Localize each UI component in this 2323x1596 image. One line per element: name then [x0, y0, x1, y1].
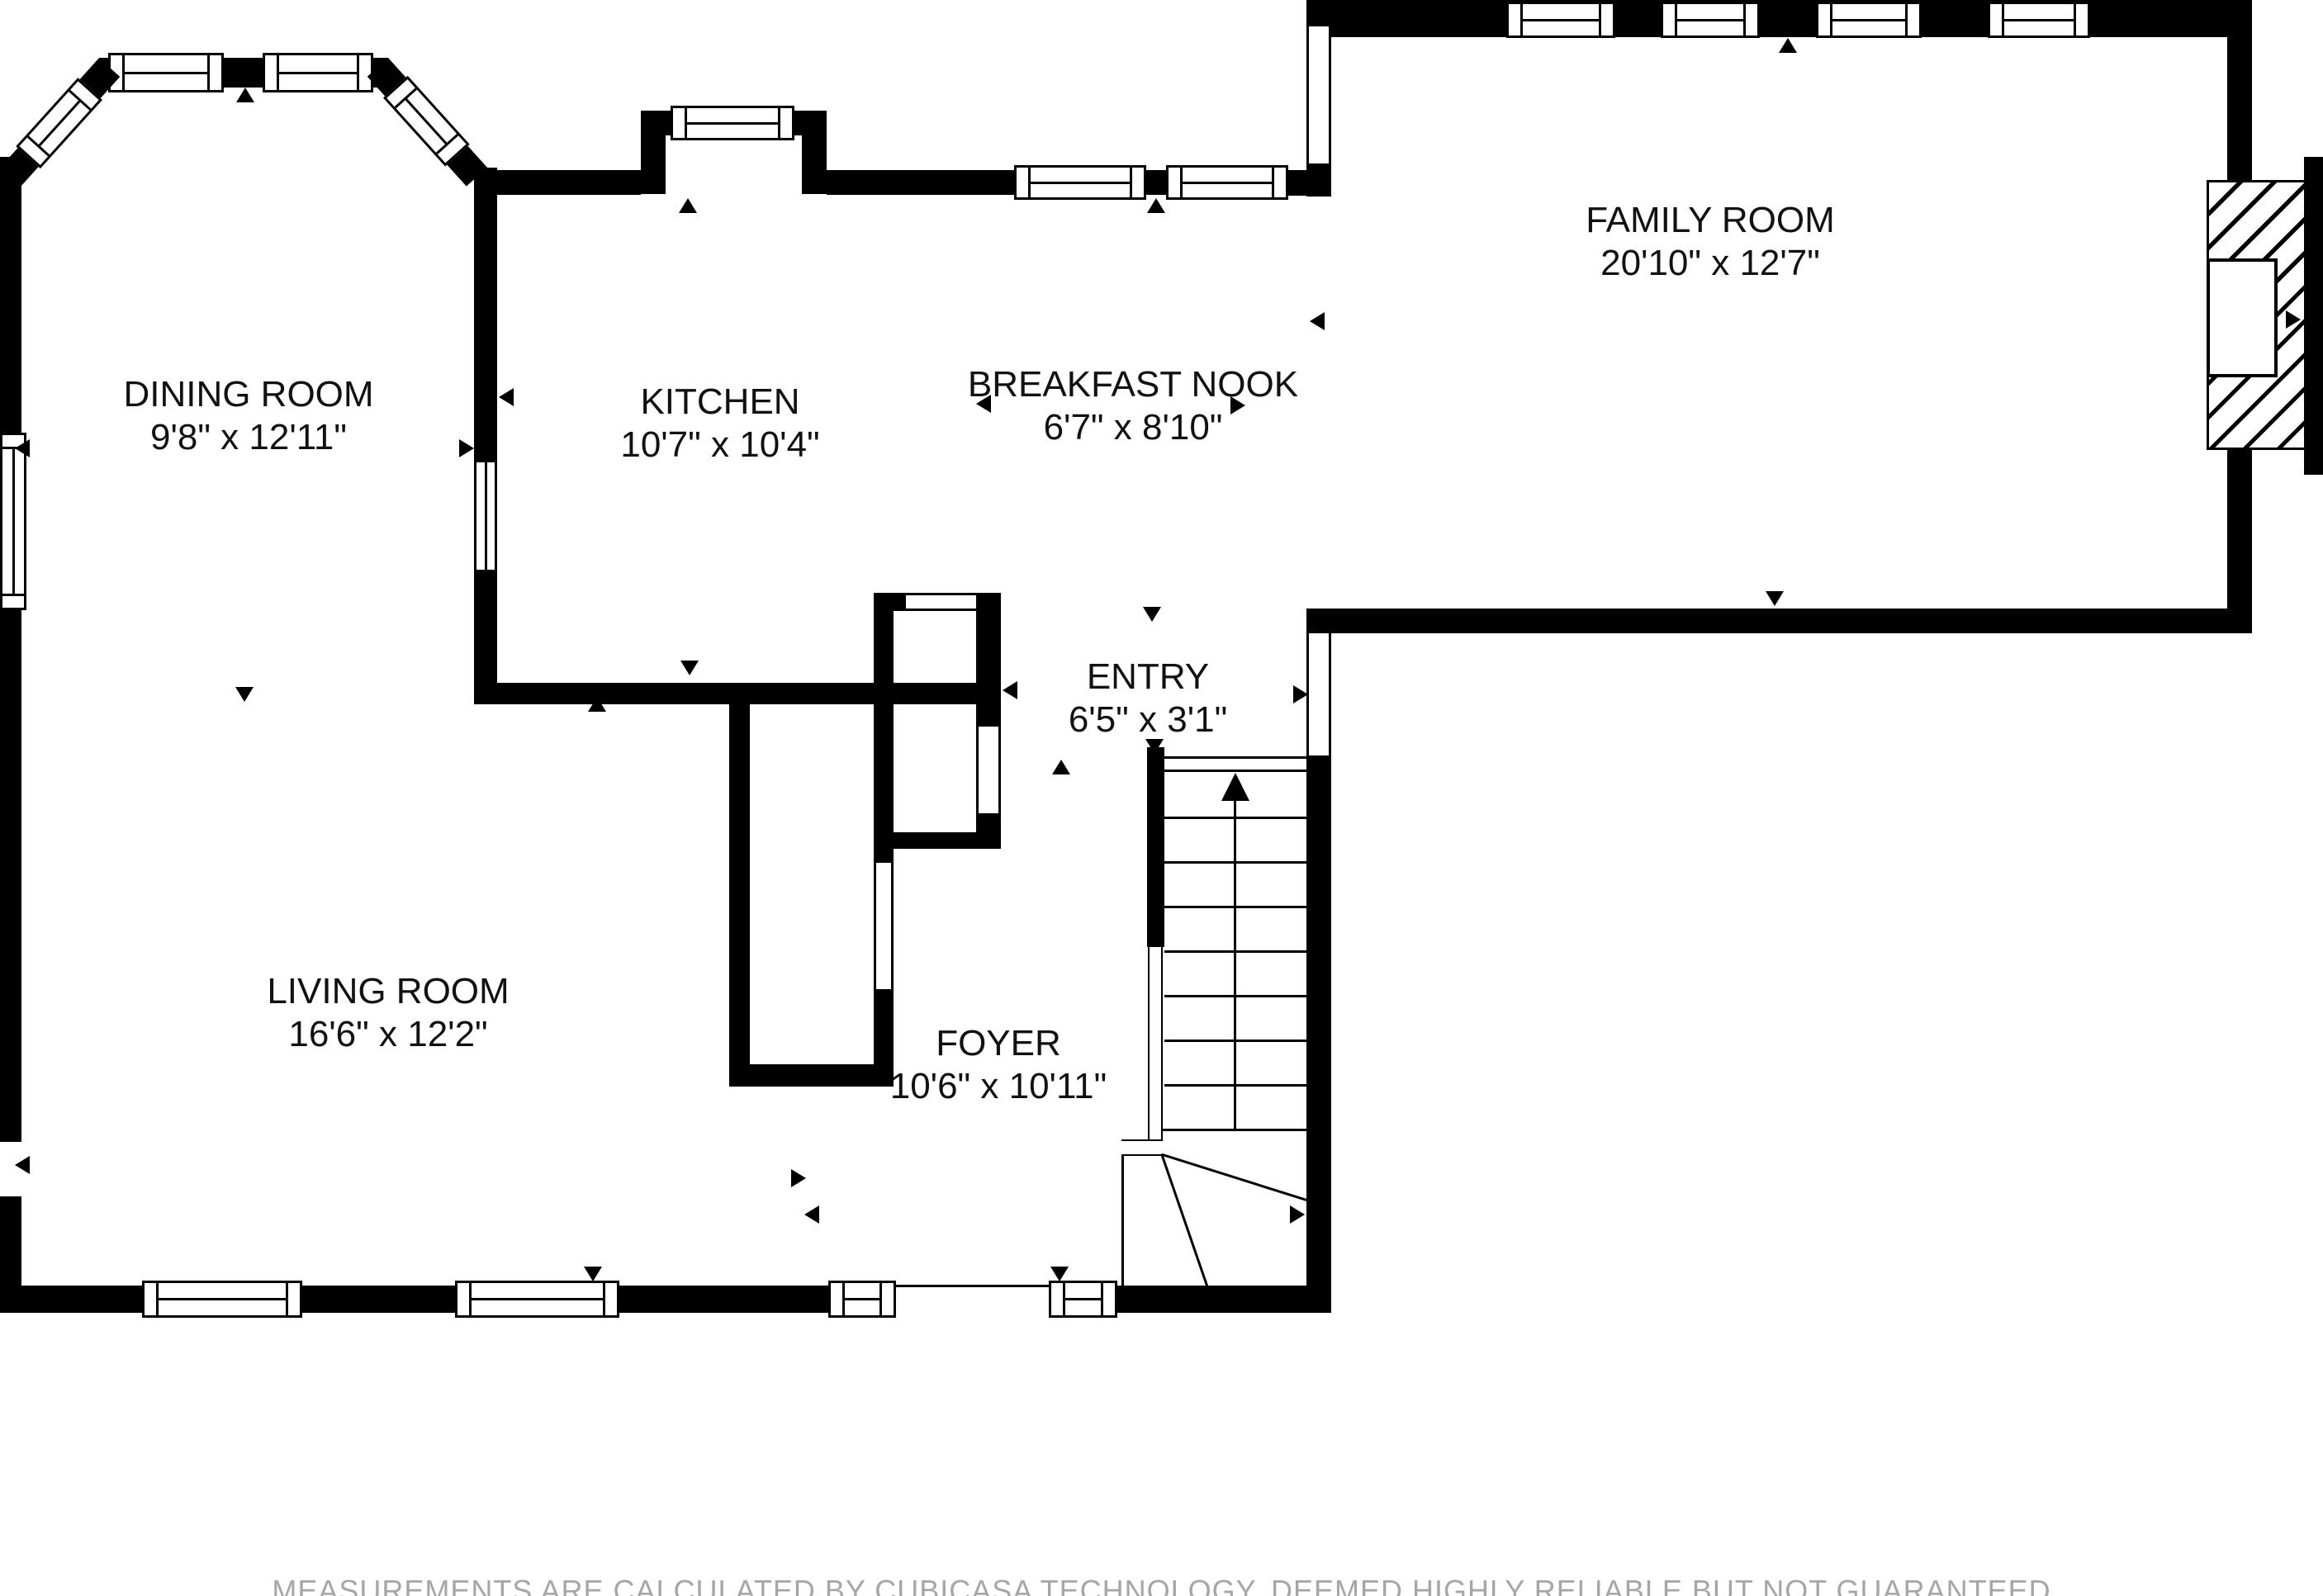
triangle-marker	[236, 88, 254, 102]
closet-left-wall	[874, 593, 894, 863]
dining-kitchen-wall-lower	[474, 570, 497, 690]
room-dims: 20'10" x 12'7"	[1586, 242, 1835, 285]
bay-window-left	[108, 53, 224, 92]
triangle-marker	[15, 439, 30, 457]
bay-wall-right-diagonal	[367, 58, 487, 187]
family-left-wall-upper	[1306, 0, 1331, 28]
stairs-handrail-notch	[1121, 1139, 1163, 1156]
closet-top-opening	[906, 593, 976, 611]
kitchen-top-wall-1	[497, 170, 641, 195]
triangle-marker	[1779, 38, 1797, 53]
nook-top-window-2	[1166, 165, 1288, 200]
nook-top-window-1	[1014, 165, 1146, 200]
triangle-marker	[1052, 760, 1070, 774]
bottom-opening-line	[896, 1285, 1049, 1287]
living-room-label: LIVING ROOM 16'6" x 12'2"	[267, 970, 509, 1056]
bay-diagonal-window-right	[383, 76, 470, 167]
triangle-marker	[1003, 681, 1017, 699]
room-dims: 10'6" x 10'11"	[890, 1065, 1107, 1108]
bottom-wall-3	[619, 1286, 828, 1313]
triangle-marker	[1147, 198, 1165, 213]
front-door-opening	[1306, 633, 1331, 755]
triangle-marker	[1050, 1267, 1069, 1281]
closet-right-wall	[976, 593, 1001, 727]
foyer-left-wall	[729, 704, 750, 1087]
triangle-marker	[1766, 591, 1784, 606]
triangle-marker	[235, 687, 254, 702]
foyer-bottom-window-2	[1049, 1281, 1117, 1318]
floor-plan: DINING ROOM 9'8" x 12'11" KITCHEN 10'7" …	[0, 0, 2323, 1596]
room-dims: 6'7" x 8'10"	[968, 406, 1298, 449]
kitchen-bump-window	[671, 106, 794, 140]
living-bottom-window-2	[455, 1281, 619, 1318]
bay-diagonal-window-left	[16, 78, 102, 168]
winder-diagonal-2	[1160, 1153, 1208, 1286]
family-left-wall-lower	[1306, 163, 1331, 197]
foyer-bottom-wall	[729, 1064, 893, 1087]
triangle-marker	[1310, 312, 1325, 330]
winder-diagonal-1	[1162, 1153, 1306, 1201]
closet-door-opening	[976, 727, 1001, 813]
family-top-window-1	[1506, 2, 1615, 38]
breakfast-nook-label: BREAKFAST NOOK 6'7" x 8'10"	[968, 363, 1298, 449]
family-right-wall-lower	[2227, 448, 2252, 633]
stairs-top-opening	[1164, 756, 1306, 772]
triangle-marker	[459, 439, 474, 457]
family-top-window-4	[1988, 2, 2090, 38]
triangle-marker	[1293, 685, 1308, 703]
bottom-wall-4	[1117, 1286, 1331, 1313]
family-right-wall-upper	[2227, 0, 2252, 182]
kitchen-top-wall-2	[827, 170, 1016, 195]
triangle-marker	[1290, 1205, 1305, 1224]
family-left-window	[1306, 26, 1331, 165]
family-top-wall	[1306, 0, 2252, 37]
room-name: FOYER	[890, 1022, 1107, 1065]
room-dims: 9'8" x 12'11"	[123, 416, 373, 459]
fireplace-firebox	[2207, 258, 2278, 377]
room-dims: 10'7" x 10'4"	[620, 424, 819, 466]
entry-label: ENTRY 6'5" x 3'1"	[1069, 656, 1227, 741]
living-bottom-window-1	[142, 1281, 302, 1318]
triangle-marker	[804, 1205, 819, 1224]
family-top-window-2	[1661, 2, 1760, 38]
triangle-marker	[499, 388, 514, 406]
room-name: DINING ROOM	[123, 373, 373, 416]
kitchen-label: KITCHEN 10'7" x 10'4"	[620, 381, 819, 466]
bottom-wall-2	[302, 1286, 455, 1313]
room-name: LIVING ROOM	[267, 970, 509, 1013]
stairs-up-arrow	[1221, 773, 1249, 801]
nook-window-mullion	[1146, 170, 1166, 195]
dining-room-label: DINING ROOM 9'8" x 12'11"	[123, 373, 373, 459]
left-wall-upper	[0, 161, 21, 433]
stairs-right-wall	[1306, 755, 1331, 1313]
measurement-disclaimer: MEASUREMENTS ARE CALCULATED BY CUBICASA …	[0, 1574, 2323, 1596]
foyer-bottom-window-1	[828, 1281, 896, 1318]
fireplace-outer-wall	[2304, 157, 2323, 475]
winder-left-line	[1121, 1154, 1124, 1286]
room-name: ENTRY	[1069, 656, 1227, 699]
triangle-marker	[679, 198, 697, 213]
kitchen-bump-right-wall	[802, 111, 827, 194]
room-dims: 16'6" x 12'2"	[267, 1013, 509, 1056]
closet-bottom-wall	[894, 832, 1001, 849]
triangle-marker	[680, 661, 699, 675]
bottom-wall-1	[0, 1286, 142, 1313]
stairs-handrail	[1148, 947, 1163, 1141]
room-name: KITCHEN	[620, 381, 819, 424]
room-dims: 6'5" x 3'1"	[1069, 699, 1227, 741]
triangle-marker	[588, 697, 606, 712]
dining-kitchen-wall-upper	[474, 168, 497, 462]
family-top-window-3	[1816, 2, 1922, 38]
dining-kitchen-window	[474, 462, 497, 570]
foyer-side-opening	[874, 863, 894, 989]
triangle-marker	[15, 1156, 30, 1174]
family-room-label: FAMILY ROOM 20'10" x 12'7"	[1586, 199, 1835, 285]
room-name: BREAKFAST NOOK	[968, 363, 1298, 406]
foyer-label: FOYER 10'6" x 10'11"	[890, 1022, 1107, 1108]
left-wall-mid	[0, 610, 21, 1139]
dining-left-window	[0, 433, 26, 610]
triangle-marker	[2286, 310, 2301, 329]
kitchen-bottom-wall	[474, 683, 1001, 704]
room-name: FAMILY ROOM	[1586, 199, 1835, 242]
family-bottom-wall	[1306, 609, 2252, 633]
triangle-marker	[1143, 607, 1161, 622]
stairs-left-wall	[1147, 747, 1164, 947]
triangle-marker	[791, 1169, 806, 1187]
triangle-marker	[584, 1267, 602, 1281]
bay-window-right	[263, 53, 373, 92]
stairs-center-line	[1234, 796, 1236, 1131]
